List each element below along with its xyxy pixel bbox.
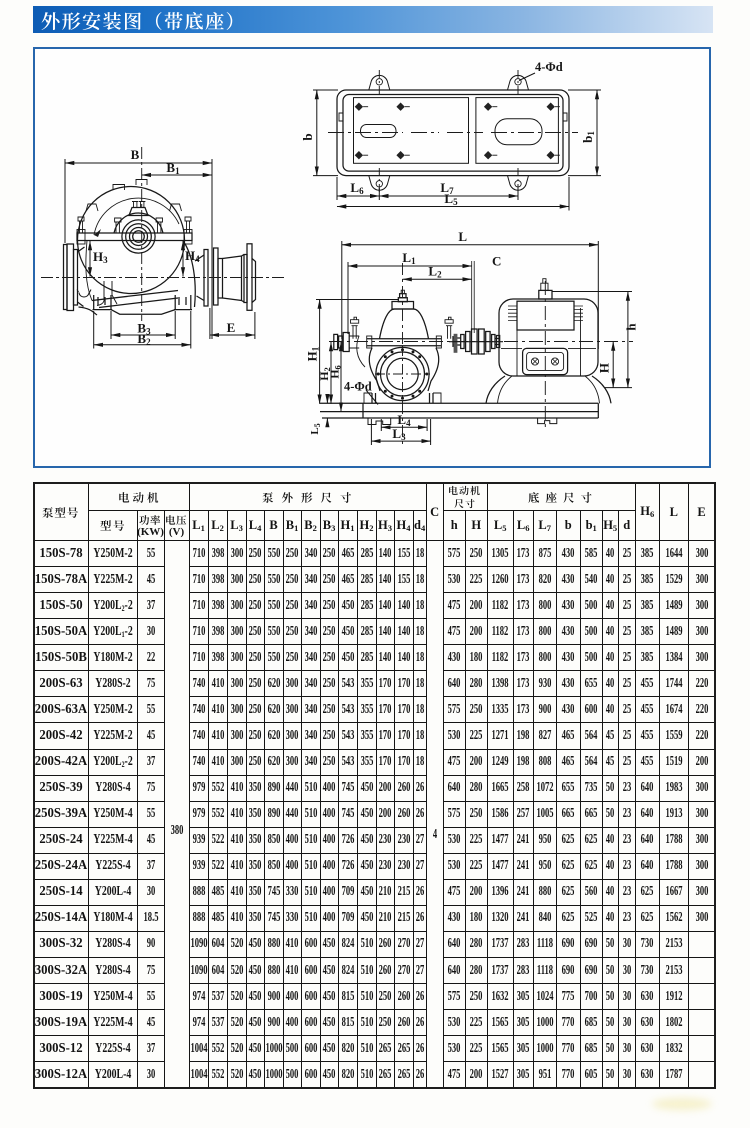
svg-text:B1: B1 [166, 160, 180, 176]
svg-text:b: b [300, 133, 315, 140]
svg-text:4-Φd: 4-Φd [344, 380, 372, 394]
svg-text:H3: H3 [93, 249, 108, 265]
svg-text:b1: b1 [580, 131, 596, 143]
svg-text:4-Φd: 4-Φd [535, 60, 563, 74]
svg-text:L1: L1 [402, 250, 416, 266]
svg-text:L: L [458, 229, 467, 244]
svg-text:L5: L5 [444, 191, 458, 207]
svg-text:C: C [492, 254, 501, 269]
svg-text:h: h [624, 323, 639, 331]
svg-text:H1: H1 [305, 346, 321, 361]
svg-text:L3: L3 [392, 426, 406, 442]
svg-text:H4: H4 [185, 248, 200, 264]
svg-text:H: H [597, 363, 612, 373]
svg-text:E: E [227, 320, 236, 335]
svg-text:B: B [131, 147, 140, 162]
svg-text:L5: L5 [309, 423, 322, 434]
svg-text:L6: L6 [350, 180, 364, 196]
